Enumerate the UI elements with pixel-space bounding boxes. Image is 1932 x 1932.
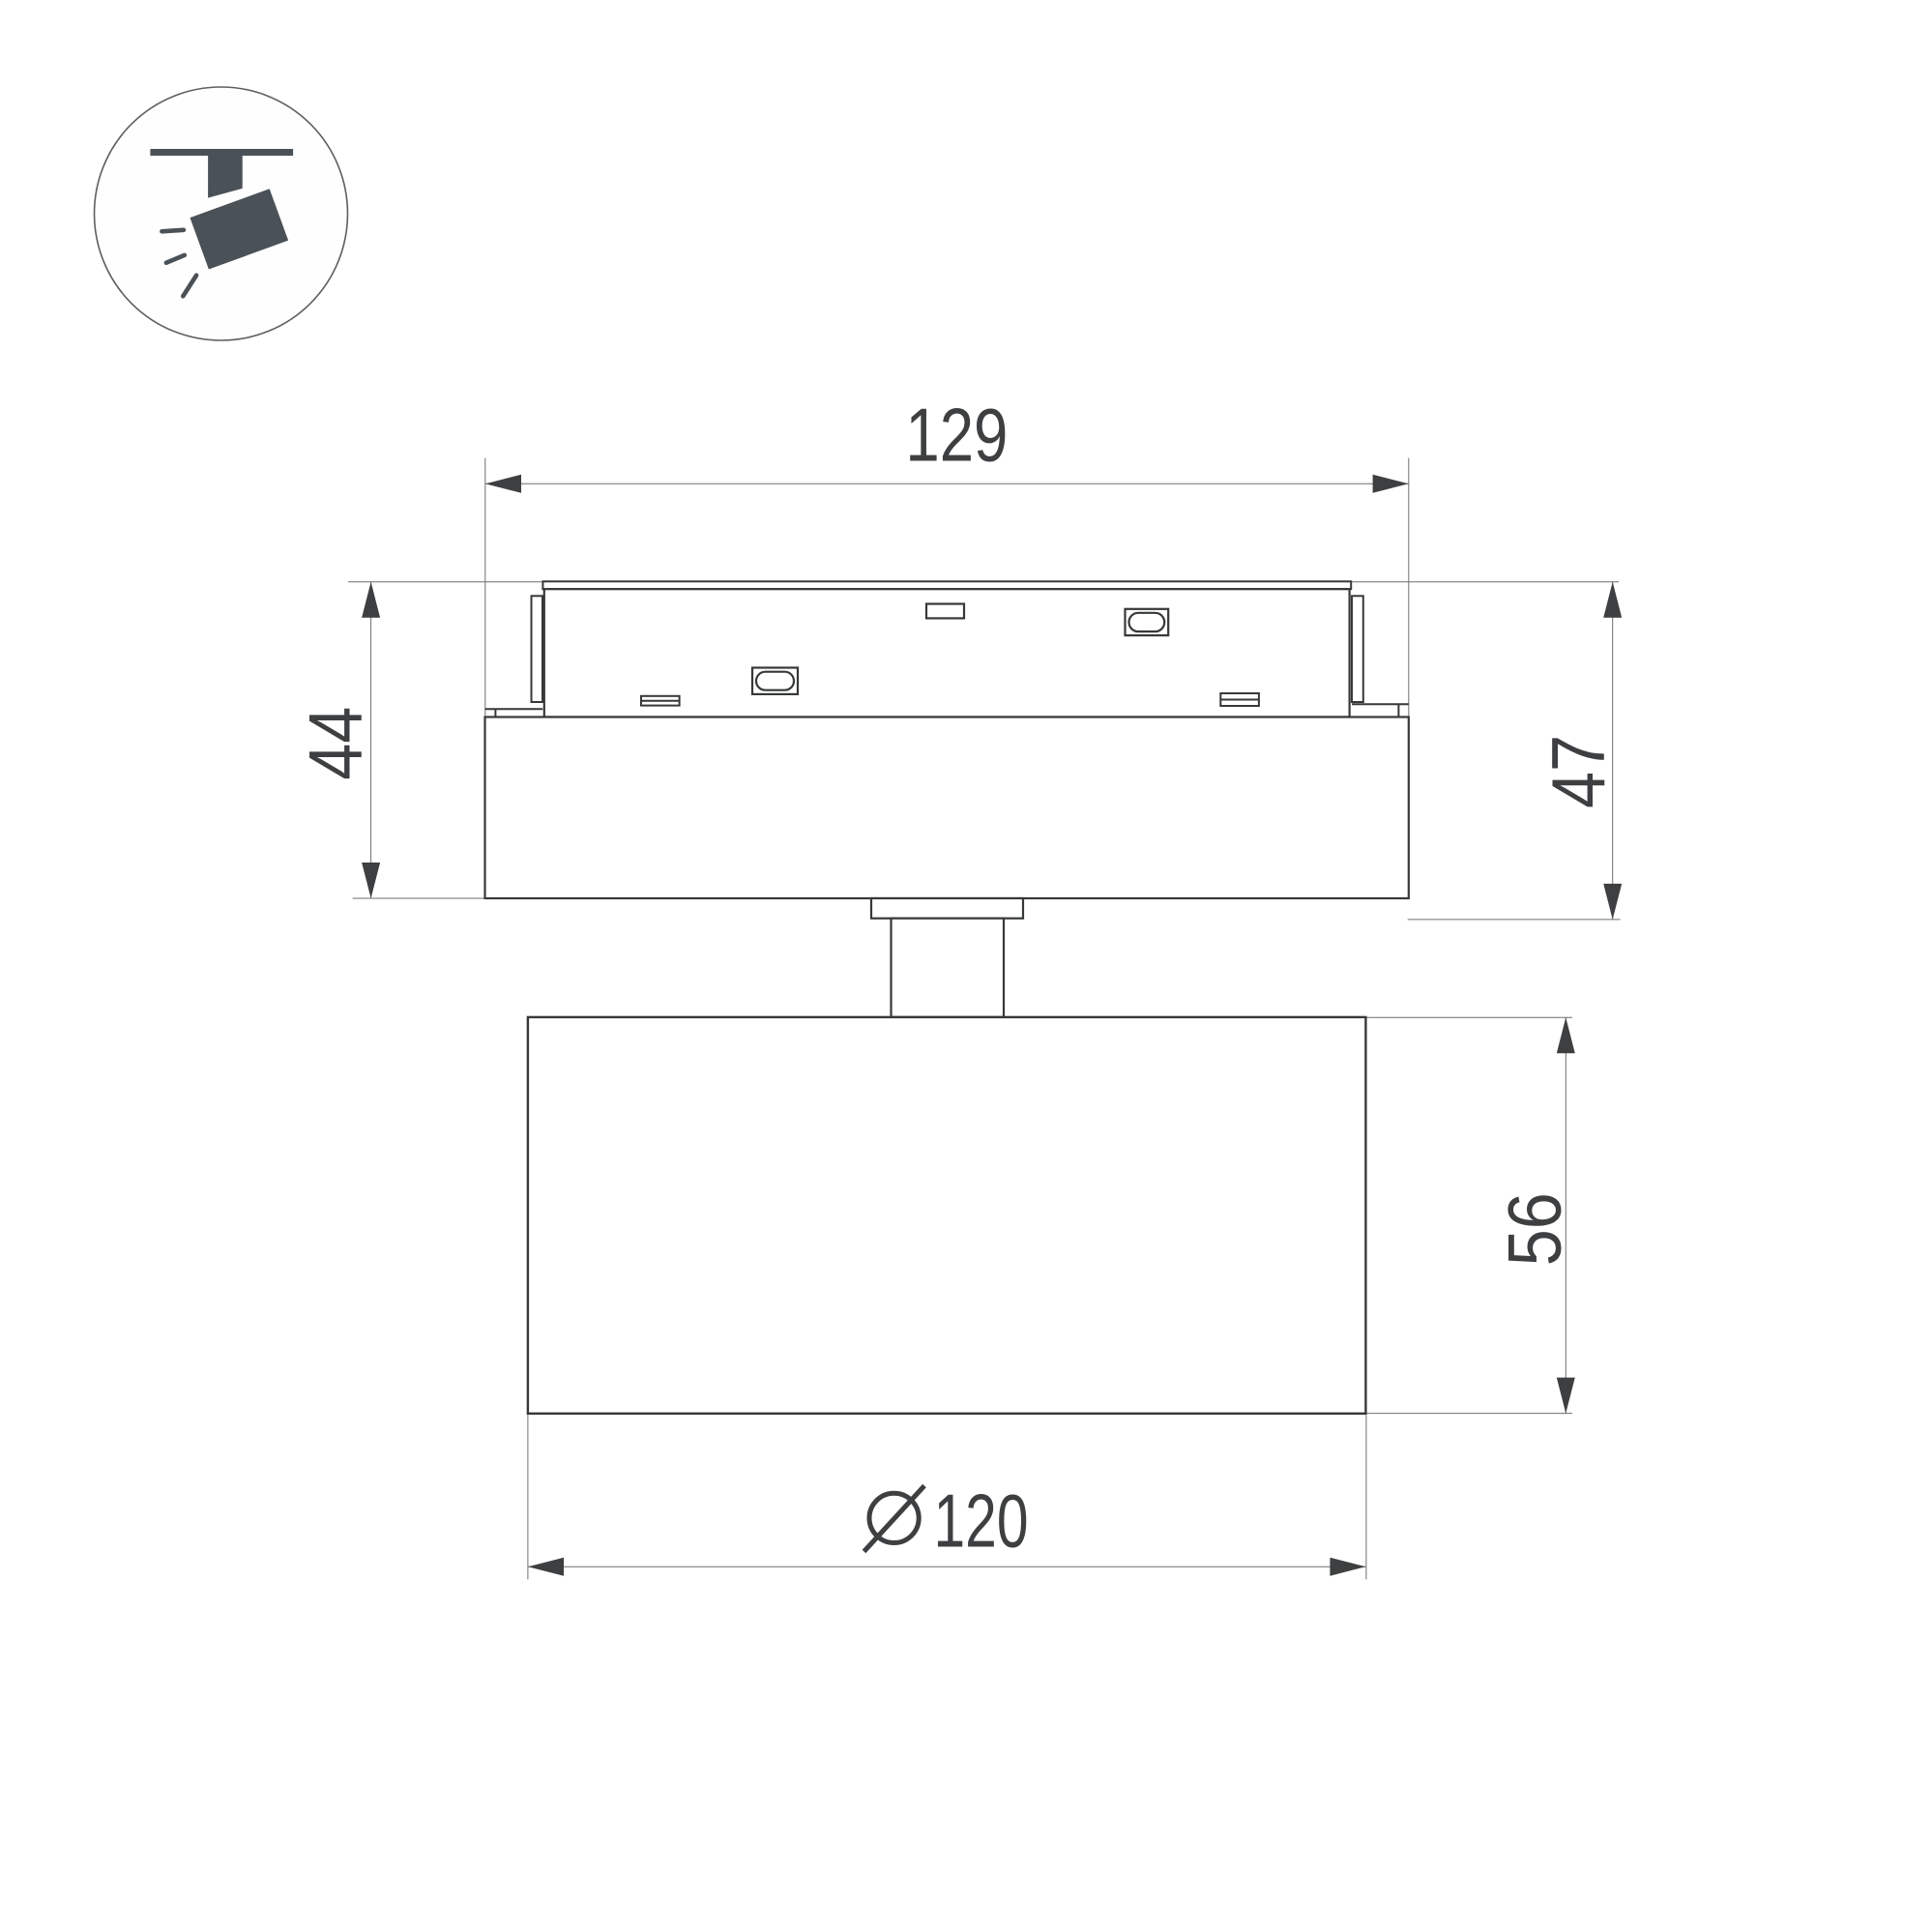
svg-text:56: 56 <box>1492 1192 1577 1266</box>
svg-text:47: 47 <box>1536 735 1621 808</box>
svg-text:44: 44 <box>293 707 378 780</box>
svg-text:129: 129 <box>905 393 1008 478</box>
svg-text:120: 120 <box>934 1478 1029 1564</box>
